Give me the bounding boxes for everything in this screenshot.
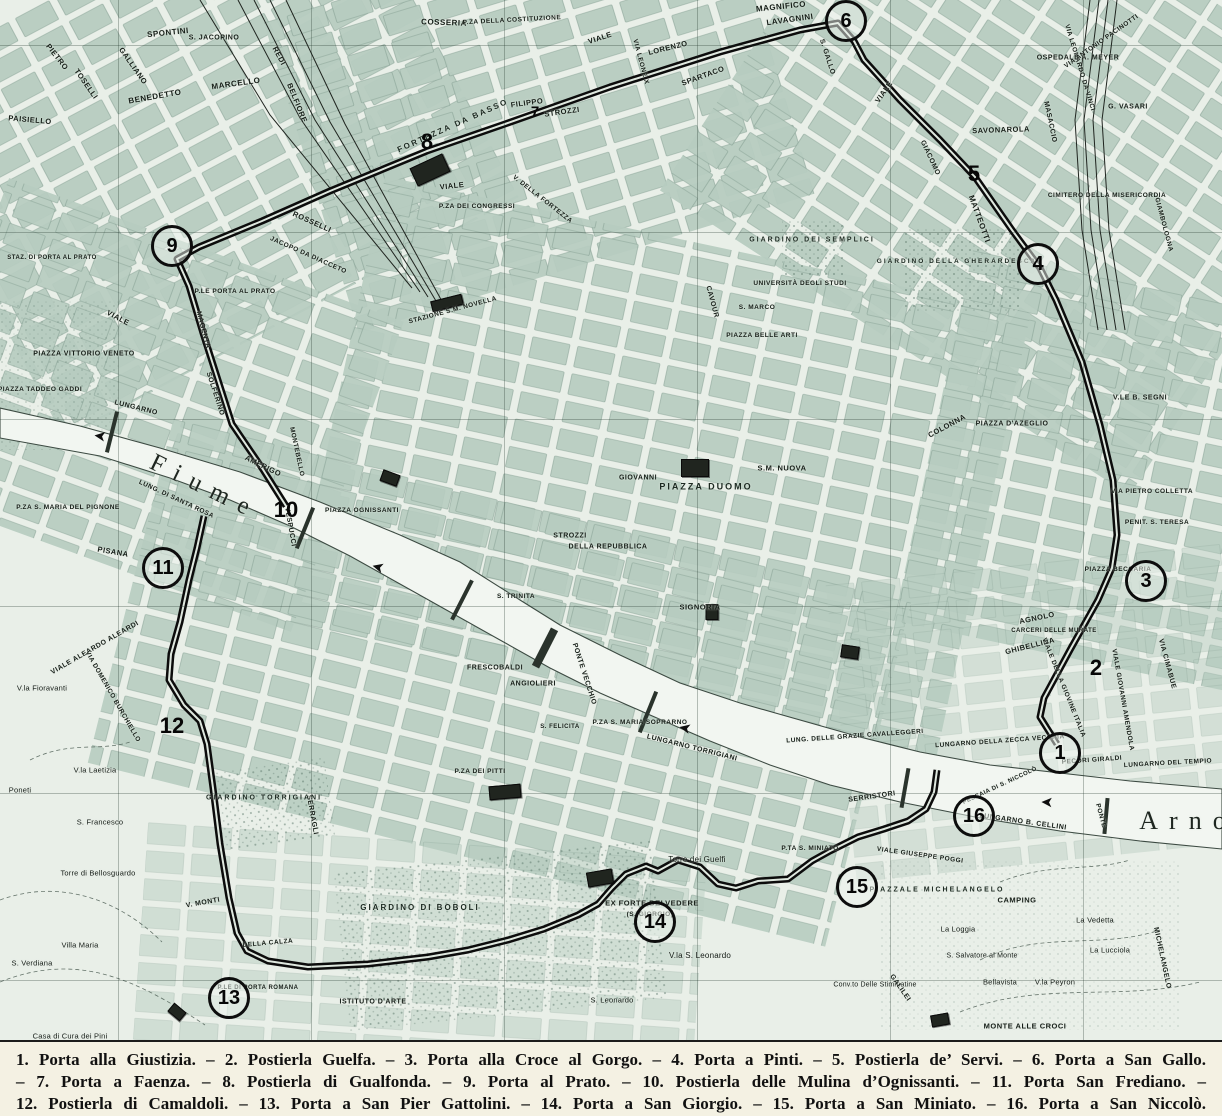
map-label: STAZ. DI PORTA AL PRATO <box>7 255 97 261</box>
landmark-building <box>586 868 614 887</box>
legend-line-3: 12. Postierla di Camaldoli. – 13. Porta … <box>16 1093 1206 1115</box>
map-label: V.la Peyron <box>1035 978 1075 986</box>
gate-marker-2: 2 <box>1090 655 1102 681</box>
bridge <box>900 768 911 808</box>
map-label: LUNGARNO DEL TEMPIO <box>1124 758 1213 769</box>
river-flow-arrow: ➤ <box>677 719 692 736</box>
map-label: SIGNORIA <box>679 603 720 611</box>
landmark-building <box>930 1013 950 1028</box>
map-label: DELLA CALZA <box>242 939 293 950</box>
map-label: SERRISTORI <box>848 790 896 804</box>
map-label: V.la S. Leonardo <box>669 952 731 960</box>
map-label: S. Salvatore al Monte <box>946 953 1017 960</box>
map-label: FRESCOBALDI <box>467 665 523 672</box>
map-label: GIARDINO DELLA GHERARDESCA <box>877 259 1037 266</box>
map-label: P.za DEI CONGRESSI <box>439 204 515 211</box>
map-label: MASACCIO <box>1042 101 1058 144</box>
map-label: CAVOUR <box>704 285 719 319</box>
map-label: CIMITERO DELLA MISERICORDIA <box>1048 193 1166 200</box>
gate-marker-7: 7 <box>531 104 539 121</box>
gate-marker-3: 3 <box>1125 560 1167 602</box>
map-label: Torre dei Guelfi <box>668 856 725 864</box>
gate-marker-10: 10 <box>274 497 298 523</box>
map-label: P.za DEI PITTI <box>454 769 505 776</box>
map-label: VIALE GIUSEPPE POGGI <box>876 847 963 866</box>
map-label: LAVAGNINI <box>766 13 814 28</box>
map-label: MONTEBELLO <box>288 427 305 478</box>
map-label: LUNGARNO TORRIGIANI <box>646 733 738 762</box>
map-label: MAGNIFICO <box>756 0 807 13</box>
map-label: S.M. NUOVA <box>757 464 806 472</box>
map-label: UNIVERSITÀ DEGLI STUDI <box>753 281 846 288</box>
gate-marker-5: 5 <box>968 161 980 187</box>
map-label: VIALE <box>587 31 613 46</box>
map-label: VIALE GIOVANNI AMENDOLA <box>1110 649 1134 752</box>
map-label: V.le B. SEGNI <box>1113 395 1167 402</box>
map-label: S. FELICITA <box>540 724 579 730</box>
map-label: P.za S. MARIA DEL PIGNONE <box>16 505 120 512</box>
river-flow-arrow: ➤ <box>1040 794 1053 810</box>
map-label: GALLIANO <box>118 46 149 86</box>
map-label: AGNOLO <box>1019 611 1056 626</box>
map-label: ANGIOLIERI <box>510 681 556 688</box>
river-flow-arrow: ➤ <box>93 428 108 445</box>
map-label: P.za DELLA COSTITUZIONE <box>463 15 562 27</box>
map-label: V. DELLA FORTEZZA <box>511 175 573 226</box>
map-label: S. Leonardo <box>590 996 633 1004</box>
gate-marker-4: 4 <box>1017 243 1059 285</box>
map-label: SPARTACO <box>681 65 726 87</box>
map-label: COSSERIA <box>421 18 467 28</box>
map-label: V.la Laetizia <box>74 766 117 774</box>
map-label: DELLA REPUBBLICA <box>569 544 648 551</box>
landmark-building <box>167 1003 186 1022</box>
map-label: GIARDINO DI BOBOLI <box>360 904 480 912</box>
map-label: COLONNA <box>927 413 967 439</box>
map-label: LUNGARNO <box>114 399 159 417</box>
map-label: MARCELLO <box>211 77 261 92</box>
gate-marker-16: 16 <box>953 795 995 837</box>
map-label: Villa Maria <box>61 941 98 949</box>
landmark-building <box>379 469 400 486</box>
map-label: S. GALLO <box>818 38 836 75</box>
bridge <box>638 691 658 733</box>
gate-marker-8: 8 <box>421 129 433 155</box>
map-label: AMERIGO <box>244 454 283 478</box>
map-label: PIAZZA DUOMO <box>659 483 752 492</box>
map-label: S. MARCO <box>739 305 776 312</box>
legend-caption: 1. Porta alla Giustizia. – 2. Postierla … <box>0 1040 1222 1116</box>
map-label: GIARDINO DEI SEMPLICI <box>749 237 875 244</box>
legend-line-2: – 7. Porta a Faenza. – 8. Postierla di G… <box>16 1071 1206 1093</box>
map-label: VIALE DELLA GIOVINE ITALIA <box>1040 637 1086 738</box>
map-label: PIAZZA OGNISSANTI <box>325 508 399 515</box>
map-label: La Vedetta <box>1076 916 1114 924</box>
map-label: PIAZZALE MICHELANGELO <box>870 887 1005 894</box>
gate-marker-6: 6 <box>825 0 867 42</box>
gate-marker-9: 9 <box>151 225 193 267</box>
map-label: VIA CIMABUE <box>1157 638 1177 690</box>
map-label: PIAZZA D'AZEGLIO <box>976 421 1049 428</box>
map-label: PIAZZA VITTORIO VENETO <box>33 351 135 358</box>
map-label: Poneti <box>9 786 31 794</box>
map-label: PIETRO <box>45 43 70 72</box>
map-label: G. VASARI <box>1108 104 1148 111</box>
map-label: Casa di Cura dei Pini <box>33 1032 108 1040</box>
map-label: ISTITUTO D'ARTE <box>340 999 407 1006</box>
gate-marker-14: 14 <box>634 901 676 943</box>
map-label: JACOPO DA DIACCETO <box>269 236 348 276</box>
map-label: VIA PIETRO COLLETTA <box>1111 489 1193 496</box>
map-label: P.le PORTA AL PRATO <box>194 289 275 296</box>
bridge <box>105 411 119 453</box>
map-label: SPONTINI <box>147 27 189 39</box>
map-label: GIACOMO <box>919 139 941 176</box>
bridge <box>450 579 474 620</box>
map-label: P.TA S. MINIATO <box>781 846 838 853</box>
map-label: PISANA <box>97 546 129 559</box>
map-label: MAGENTA <box>195 311 212 350</box>
gate-marker-15: 15 <box>836 866 878 908</box>
gate-marker-13: 13 <box>208 977 250 1019</box>
map-label: PIAZZA TADDEO GADDI <box>0 387 82 394</box>
map-canvas: FiumeArnoSPONTINIS. JACOPINOGALLIANOPIET… <box>0 0 1222 1040</box>
map-label: ROSSELLI <box>292 210 333 234</box>
map-label: GIAMBOLOGNA <box>1153 197 1174 252</box>
map-label: GIOVANNI <box>619 475 657 482</box>
map-label: PONTE VECCHIO <box>571 642 598 705</box>
map-label: La Lucciola <box>1090 946 1130 954</box>
map-label: MATTEOTTI <box>967 194 992 243</box>
map-label: La Loggia <box>941 925 976 933</box>
map-label: STROZZI <box>553 533 586 540</box>
map-label: LORENZO <box>648 40 689 57</box>
map-label: VIALE <box>105 309 130 327</box>
map-label: CAMPING <box>998 896 1037 904</box>
scanned-map-page: FiumeArnoSPONTINIS. JACOPINOGALLIANOPIET… <box>0 0 1222 1116</box>
map-label: REDI <box>271 45 287 66</box>
map-label: VIA LEONE X <box>631 39 649 86</box>
landmark-building <box>488 784 521 801</box>
legend-line-1: 1. Porta alla Giustizia. – 2. Postierla … <box>16 1049 1206 1071</box>
map-label: S. Francesco <box>77 818 124 826</box>
gate-marker-12: 12 <box>160 713 184 739</box>
map-label: VIA DOMENICO BURCHIELLO <box>83 650 141 743</box>
map-label: S. TRINITA <box>497 594 535 601</box>
map-label: Bellavista <box>983 978 1017 986</box>
map-label: CARCERI DELLE MURATE <box>1011 628 1097 634</box>
landmark-building <box>840 644 860 659</box>
map-label: Torre di Bellosguardo <box>60 869 135 877</box>
map-label: STROZZI <box>544 106 580 118</box>
map-label: LUNG. DELLE GRAZIE CAVALLEGGERI <box>786 729 924 745</box>
map-label: VIALE <box>439 181 464 191</box>
gate-marker-11: 11 <box>142 547 184 589</box>
river-flow-arrow: ➤ <box>370 558 386 576</box>
map-label: PAISIELLO <box>8 114 52 125</box>
gate-marker-1: 1 <box>1039 732 1081 774</box>
map-label: Arno <box>1139 808 1222 834</box>
map-label: MICHELANGELO <box>1152 927 1172 990</box>
map-label: PIAZZA BELLE ARTI <box>726 333 798 340</box>
map-label: S. JACOPINO <box>189 35 240 42</box>
map-label: S. Verdiana <box>12 959 53 967</box>
map-label: BELFIORE <box>286 82 309 124</box>
map-label: BENEDETTO <box>128 88 182 105</box>
map-label: V. MONTI <box>185 897 220 910</box>
map-label: TOSELLI <box>73 68 99 101</box>
map-label: SOLFERINO <box>205 371 226 416</box>
map-label: VIALE <box>874 80 894 104</box>
map-label: MONTE ALLE CROCI <box>984 1022 1067 1030</box>
landmark-building <box>681 459 709 477</box>
map-label: SAVONAROLA <box>972 125 1030 135</box>
map-label: V.la Fioravanti <box>17 684 67 692</box>
map-overlay: FiumeArnoSPONTINIS. JACOPINOGALLIANOPIET… <box>0 0 1222 1040</box>
map-label: PENIT. S. TERESA <box>1125 520 1189 527</box>
map-label: P.za S. MARIA SOPRARNO <box>593 720 688 727</box>
map-label: FORTEZZA DA BASSO <box>396 98 509 154</box>
map-label: GIARDINO TORRIGIANI <box>206 795 322 802</box>
bridge <box>532 627 558 668</box>
